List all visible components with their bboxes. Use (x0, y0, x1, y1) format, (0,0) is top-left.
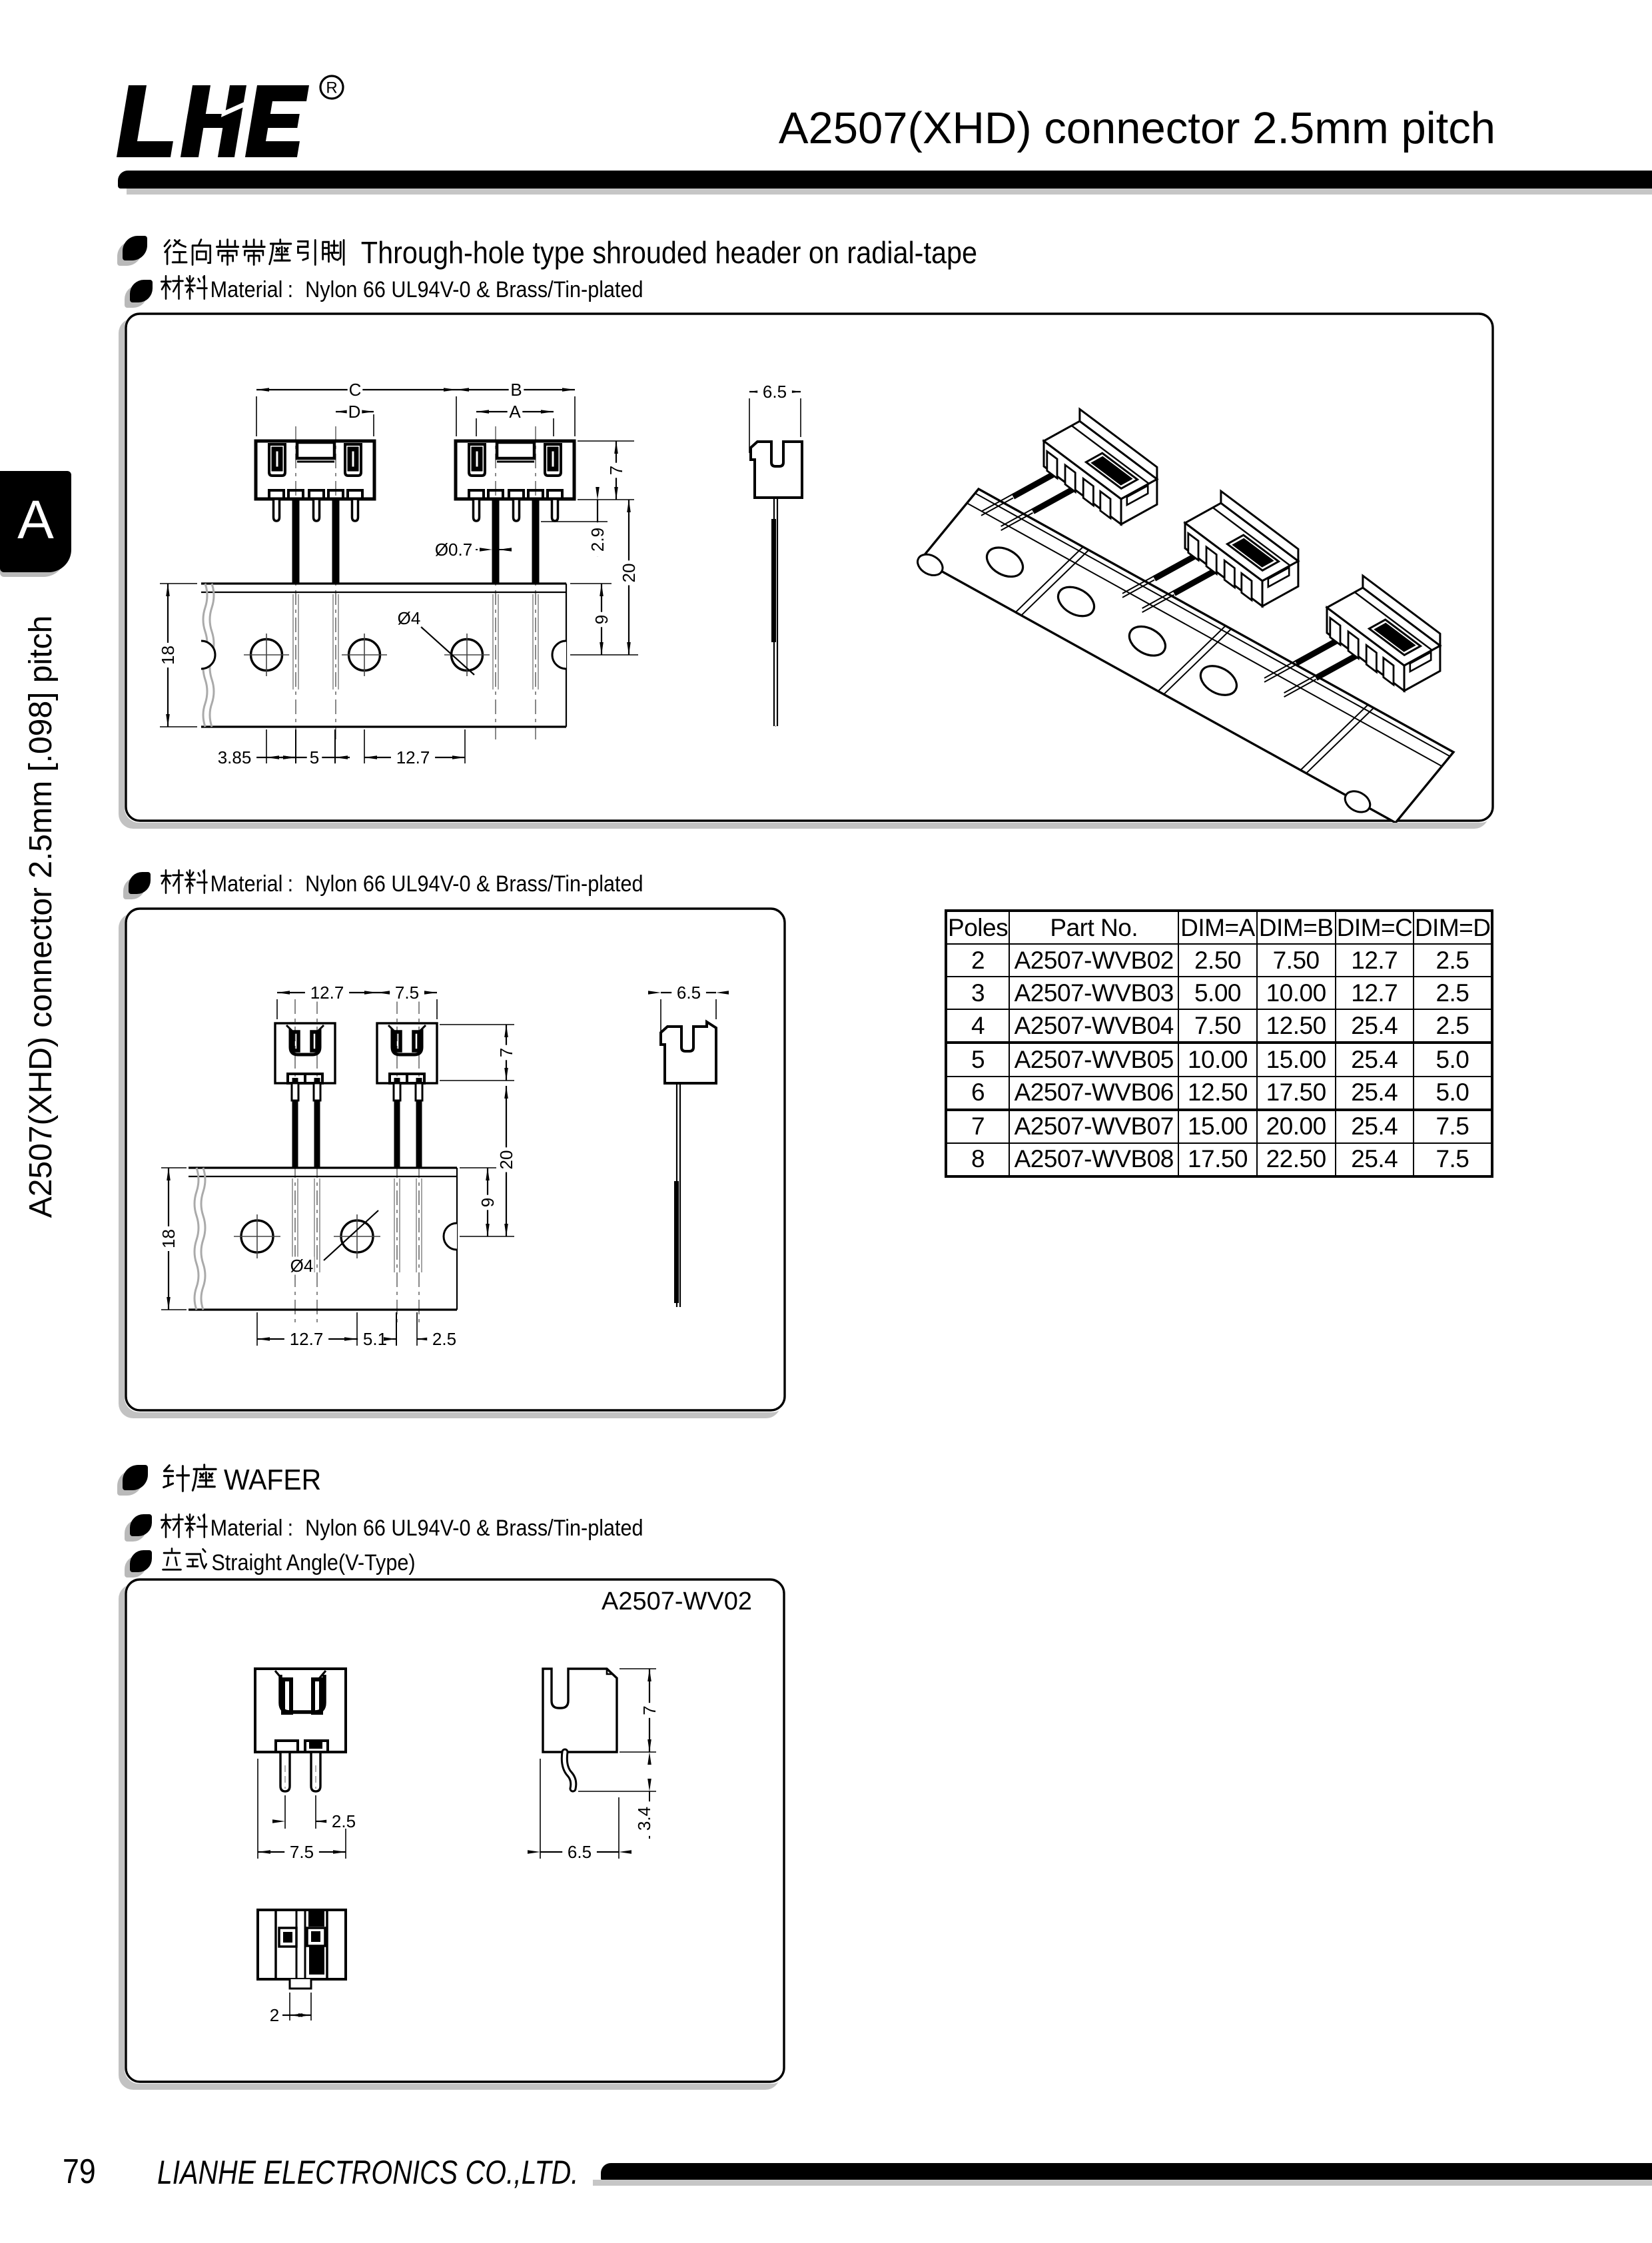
svg-text:7: 7 (639, 1705, 659, 1715)
svg-text:5: 5 (310, 747, 319, 767)
svg-text:20: 20 (619, 564, 639, 583)
svg-text:2.9: 2.9 (588, 528, 608, 552)
svg-text:3.4: 3.4 (634, 1807, 654, 1831)
svg-text:7.5: 7.5 (290, 1842, 314, 1862)
svg-text:20: 20 (496, 1150, 516, 1170)
svg-text:18: 18 (158, 646, 178, 665)
svg-text:12.7: 12.7 (290, 1329, 324, 1349)
svg-text:12.7: 12.7 (396, 747, 430, 767)
svg-text:6.5: 6.5 (677, 983, 701, 1003)
svg-text:3.85: 3.85 (218, 747, 252, 767)
svg-text:7: 7 (606, 466, 626, 475)
svg-text:C: C (349, 380, 362, 400)
svg-text:7: 7 (496, 1048, 516, 1057)
svg-text:2.5: 2.5 (432, 1329, 456, 1349)
svg-text:D: D (348, 402, 361, 422)
svg-text:12.7: 12.7 (310, 983, 344, 1003)
svg-text:Ø4: Ø4 (398, 608, 421, 628)
svg-text:Ø4: Ø4 (290, 1256, 314, 1276)
svg-text:5.1: 5.1 (363, 1329, 387, 1349)
svg-text:Ø0.7: Ø0.7 (435, 540, 472, 560)
svg-text:9: 9 (478, 1198, 498, 1207)
svg-text:A2507-WV02: A2507-WV02 (602, 1587, 752, 1615)
svg-text:A: A (509, 402, 521, 422)
svg-text:2: 2 (270, 2005, 279, 2025)
svg-text:9: 9 (592, 615, 612, 624)
svg-text:2.5: 2.5 (332, 1811, 356, 1831)
svg-text:6.5: 6.5 (568, 1842, 592, 1862)
svg-text:6.5: 6.5 (763, 382, 787, 402)
svg-text:R: R (326, 79, 337, 97)
svg-text:18: 18 (159, 1229, 179, 1248)
svg-text:B: B (510, 380, 522, 400)
svg-text:7.5: 7.5 (395, 983, 419, 1003)
